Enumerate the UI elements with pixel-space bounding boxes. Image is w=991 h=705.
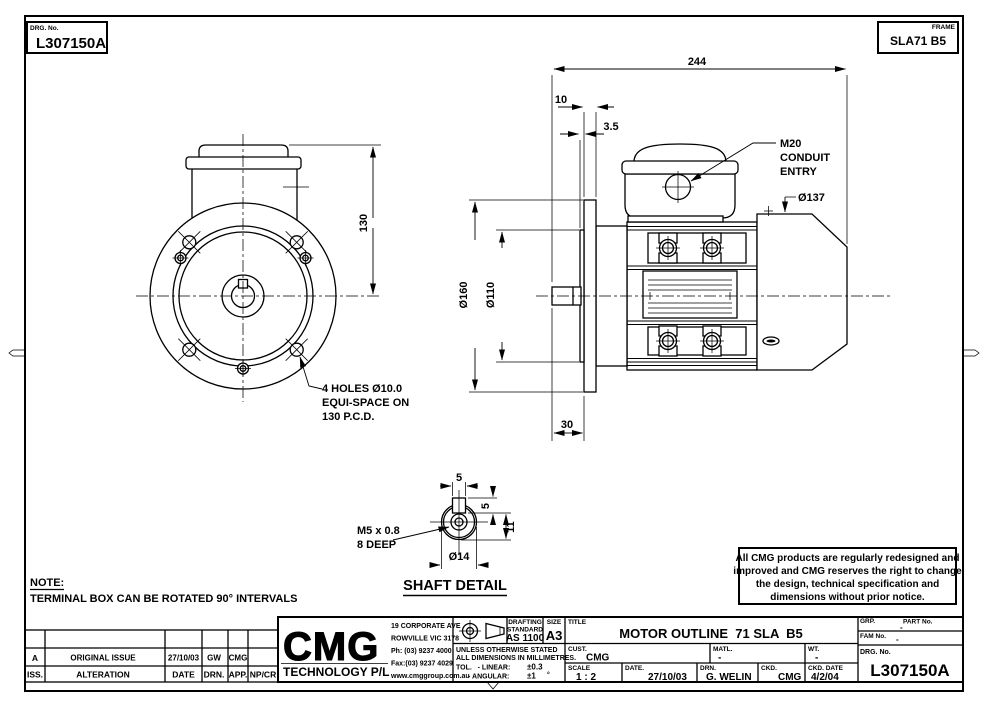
- rev-alteration: ORIGINAL ISSUE: [70, 654, 136, 663]
- scale-cell: SCALE 1 : 2: [568, 665, 596, 683]
- rev-header-npcr: NP/CR: [250, 670, 276, 680]
- conduit-line3: ENTRY: [780, 166, 818, 178]
- ckd-cell: CKD. CMG: [761, 665, 802, 683]
- frame-value: SLA71 B5: [890, 34, 946, 48]
- dim-30: 30: [552, 308, 584, 441]
- dim-14-text: Ø14: [449, 551, 471, 563]
- tolerance-linear-value: ±0.3: [527, 663, 543, 672]
- tap-line1: M5 x 0.8: [357, 525, 400, 537]
- dim-3-5-text: 3.5: [603, 121, 618, 133]
- company-name: TECHNOLOGY P/L: [283, 665, 389, 679]
- grp-part-cell: GRP. PART No. -: [860, 618, 933, 632]
- rev-header-iss: ISS.: [27, 670, 43, 680]
- fan-cowl: [757, 206, 847, 370]
- disclaimer-line3: the design, technical specification and: [756, 579, 939, 590]
- cust-value: CMG: [586, 653, 610, 664]
- drafting-value: AS 1100: [506, 633, 545, 644]
- left-centering-mark: [9, 350, 25, 356]
- dim-10-text: 10: [555, 94, 567, 106]
- wt-value: -: [815, 653, 818, 664]
- tolerance-line2: ALL DIMENSIONS IN MILLIMETRES.: [456, 655, 576, 662]
- drn-value: G. WELIN: [706, 672, 752, 683]
- rev-drn: GW: [207, 654, 221, 663]
- revision-table: A ORIGINAL ISSUE 27/10/03 GW CMG ISS. AL…: [25, 630, 278, 682]
- dim-30-text: 30: [561, 419, 573, 431]
- dim-key-height-text: 5: [480, 503, 492, 509]
- dim-137: Ø137: [785, 192, 825, 212]
- tolerance-line1: UNLESS OTHERWISE STATED: [456, 647, 558, 654]
- scale-label: SCALE: [568, 665, 591, 672]
- rev-header-drn: DRN.: [204, 670, 225, 680]
- dim-244-text: 244: [688, 56, 707, 68]
- drafting-standard-cell: DRAFTING STANDARD AS 1100: [506, 619, 545, 644]
- title-value: MOTOR OUTLINE 71 SLA B5: [619, 626, 802, 641]
- company-web: www.cmggroup.com.au: [390, 673, 470, 680]
- dim-160-text: Ø160: [458, 282, 470, 309]
- matl-label: MATL.: [713, 646, 733, 653]
- size-value: A3: [546, 628, 563, 643]
- company-address1: 19 CORPORATE AVE: [391, 623, 461, 630]
- rev-app: CMG: [229, 654, 248, 663]
- date-cell: DATE. 27/10/03: [625, 665, 687, 683]
- grp-label: GRP.: [860, 618, 875, 625]
- tolerance-cell: UNLESS OTHERWISE STATED ALL DIMENSIONS I…: [456, 647, 576, 681]
- side-terminal-box: [622, 144, 738, 222]
- tolerance-angular-value: ±1: [527, 672, 536, 681]
- shaft-detail: 5 5 11 Ø14 M5 x 0.8 8 DEEP SHAFT DETAIL: [357, 472, 517, 596]
- rev-header-app: APP.: [229, 670, 248, 680]
- drg-no-value: L307150A: [36, 35, 106, 52]
- wt-cell: WT. -: [808, 646, 819, 664]
- drn-label: DRN.: [700, 665, 716, 672]
- dim-key-width-text: 5: [456, 472, 462, 484]
- drafting-line1: DRAFTING: [508, 619, 542, 626]
- size-label: SIZE: [547, 619, 562, 626]
- tap-callout: M5 x 0.8 8 DEEP: [357, 525, 449, 551]
- ckd-label: CKD.: [761, 665, 777, 672]
- dim-110-text: Ø110: [485, 282, 497, 308]
- holes-note-line3: 130 P.C.D.: [322, 411, 374, 423]
- title-label: TITLE: [568, 619, 587, 626]
- fam-label: FAM No.: [860, 633, 886, 640]
- tolerance-angular-unit: °: [547, 671, 550, 679]
- drg-cell: DRG. No. L307150A: [860, 649, 950, 680]
- conduit-line1: M20: [780, 138, 801, 150]
- front-terminal-cap: [199, 145, 288, 158]
- company-address2: ROWVILLE VIC 3178: [391, 636, 459, 643]
- drg-label: DRG. No.: [860, 649, 891, 656]
- note-text: TERMINAL BOX CAN BE ROTATED 90° INTERVAL…: [30, 593, 297, 605]
- holes-note-line1: 4 HOLES Ø10.0: [322, 383, 402, 395]
- drawing-sheet: DRG. No. L307150A FRAME SLA71 B5: [0, 0, 991, 700]
- title-block: CMG TECHNOLOGY P/L 19 CORPORATE AVE ROWV…: [278, 617, 963, 683]
- holes-note-line2: EQUI-SPACE ON: [322, 397, 409, 409]
- cust-label: CUST.: [568, 646, 587, 653]
- matl-value: -: [718, 653, 721, 664]
- rev-date: 27/10/03: [168, 654, 200, 663]
- company-phone: Ph: (03) 9237 4000: [391, 648, 452, 655]
- drawing-canvas: DRG. No. L307150A FRAME SLA71 B5: [0, 0, 991, 700]
- rev-header-alteration: ALTERATION: [76, 670, 130, 680]
- rev-header-date: DATE: [172, 670, 195, 680]
- dim-11-text: 11: [505, 521, 517, 533]
- date-value: 27/10/03: [648, 672, 687, 683]
- fam-cell: FAM No. -: [860, 633, 899, 644]
- grp-part-value: -: [900, 623, 903, 632]
- front-terminal-lid: [186, 157, 301, 169]
- company-fax: Fax:(03) 9237 4029: [391, 661, 453, 668]
- matl-cell: MATL. -: [713, 646, 733, 664]
- frame-label: FRAME: [932, 24, 956, 31]
- revision-header: ISS. ALTERATION DATE DRN. APP. NP/CR: [27, 670, 276, 680]
- drg-value: L307150A: [870, 661, 949, 680]
- tap-line2: 8 DEEP: [357, 539, 396, 551]
- drg-no-label: DRG. No.: [30, 25, 59, 32]
- disclaimer-line1: All CMG products are regularly redesigne…: [736, 553, 960, 564]
- side-view: 244 10 3.5 Ø160 Ø110 30: [458, 56, 893, 441]
- dim-137-text: Ø137: [798, 192, 825, 204]
- ckd-date-label: CKD. DATE: [808, 665, 844, 672]
- ckd-date-cell: CKD. DATE 4/2/04: [808, 665, 844, 683]
- company-logo: CMG: [283, 625, 379, 669]
- part-label: PART No.: [903, 619, 933, 626]
- tolerance-angular-label: - ANGULAR:: [468, 674, 509, 681]
- ckd-date-value: 4/2/04: [811, 672, 839, 683]
- projection-symbol: [459, 620, 504, 642]
- dim-10: 10: [555, 94, 614, 197]
- fam-value: -: [896, 635, 899, 644]
- size-cell: SIZE A3: [546, 619, 563, 643]
- right-centering-mark: [963, 350, 979, 356]
- conduit-line2: CONDUIT: [780, 152, 830, 164]
- title-cell: TITLE MOTOR OUTLINE 71 SLA B5: [568, 619, 803, 641]
- nameplate: [643, 271, 737, 318]
- disclaimer-box: All CMG products are regularly redesigne…: [733, 548, 962, 604]
- disclaimer-line4: dimensions without prior notice.: [770, 592, 925, 603]
- front-view: 130 4 HOLES Ø10.0 EQUI-SPACE ON 130 P.C.…: [136, 134, 409, 423]
- dim-130-text: 130: [358, 214, 370, 232]
- date-label: DATE.: [625, 665, 644, 672]
- drn-cell: DRN. G. WELIN: [700, 665, 752, 683]
- tolerance-linear-label: TOL. - LINEAR:: [456, 665, 510, 672]
- corner-box-drg-no: DRG. No. L307150A: [27, 22, 107, 53]
- holes-note: 4 HOLES Ø10.0 EQUI-SPACE ON 130 P.C.D.: [300, 357, 409, 423]
- note: NOTE: TERMINAL BOX CAN BE ROTATED 90° IN…: [30, 577, 297, 605]
- note-label: NOTE:: [30, 577, 64, 589]
- ckd-value: CMG: [778, 672, 802, 683]
- corner-box-frame: FRAME SLA71 B5: [878, 22, 958, 53]
- shaft-detail-title: SHAFT DETAIL: [403, 578, 507, 594]
- bottom-centering-mark: [487, 682, 499, 689]
- scale-value: 1 : 2: [576, 672, 596, 683]
- rev-iss: A: [32, 653, 38, 663]
- revision-row: A ORIGINAL ISSUE 27/10/03 GW CMG: [32, 653, 247, 663]
- disclaimer-line2: improved and CMG reserves the right to c…: [733, 566, 962, 577]
- company-block: CMG TECHNOLOGY P/L 19 CORPORATE AVE ROWV…: [281, 623, 470, 680]
